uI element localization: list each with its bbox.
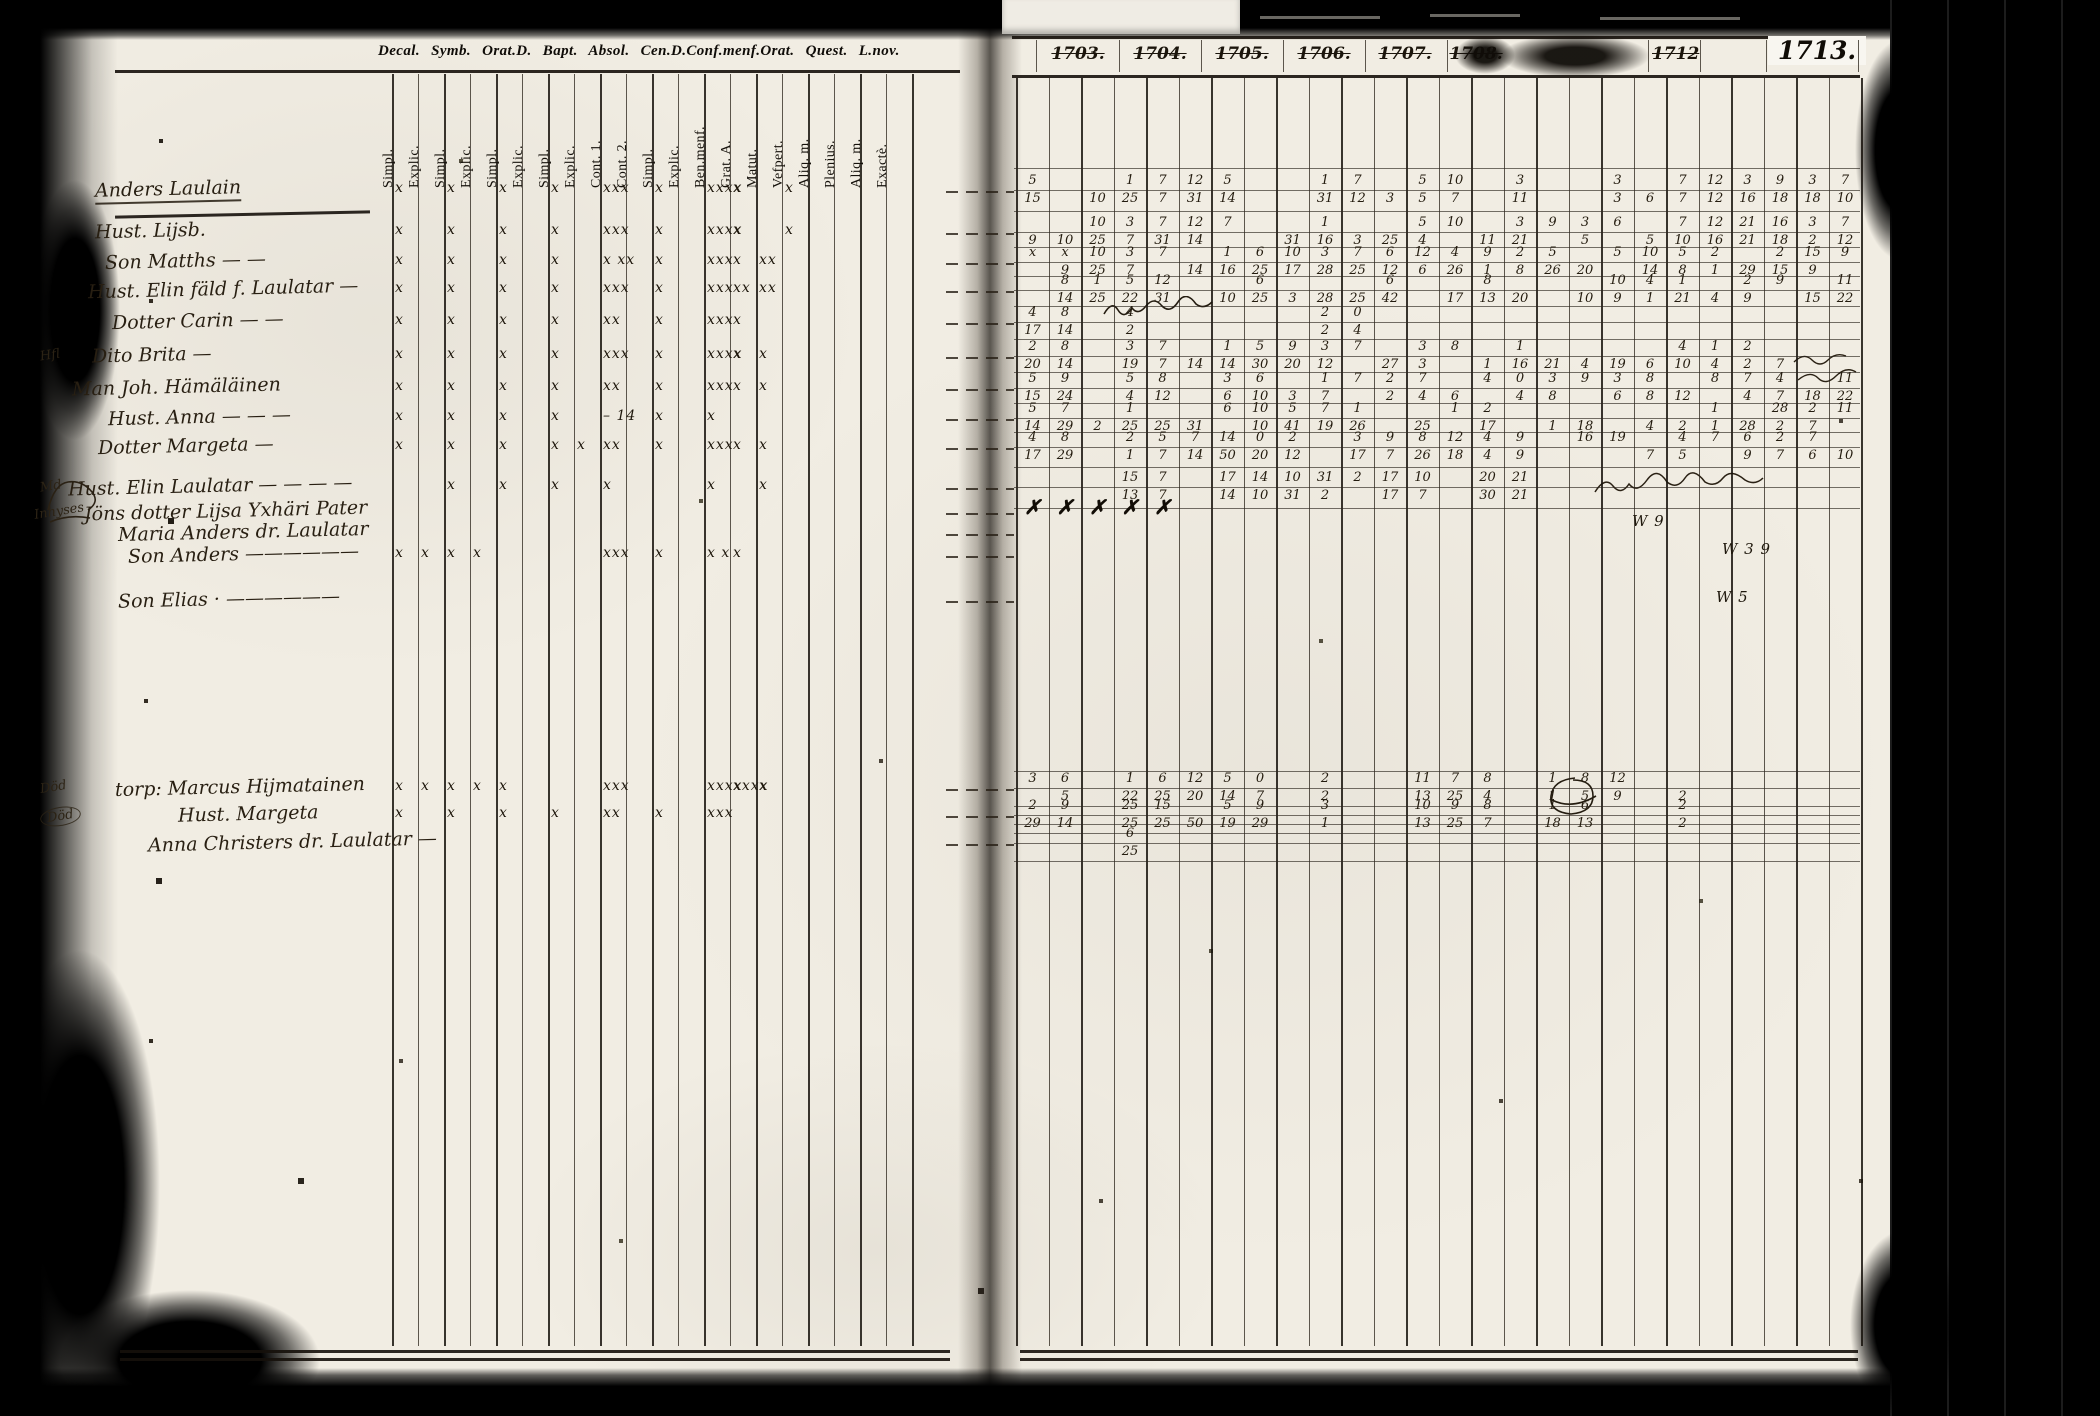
margin-annotation: W 5	[1716, 588, 1749, 606]
attendance-mark: x	[447, 180, 456, 196]
entry-number: 14	[1179, 263, 1212, 278]
row-leader	[946, 357, 1014, 359]
entry-number: 3	[1276, 291, 1309, 306]
attendance-mark: x	[395, 312, 404, 328]
name-entry: Anders Laulain	[95, 176, 242, 205]
entry-number: 20	[1179, 789, 1212, 804]
entry-number: 12	[1439, 430, 1472, 445]
entry-number: 8	[1406, 430, 1439, 445]
entry-number: 9	[1601, 789, 1634, 804]
entry-number: 25	[1244, 291, 1277, 306]
entry-number: 2	[1016, 798, 1049, 813]
entry-number: 2	[1731, 357, 1764, 372]
entry-number: 12	[1601, 771, 1634, 786]
attendance-mark: x x	[707, 545, 730, 561]
entry-number: ✗	[1016, 495, 1049, 519]
entry-number: 9	[1244, 798, 1277, 813]
attendance-mark: x	[759, 437, 768, 453]
row-leader	[946, 191, 1014, 193]
ink-smudge	[1455, 36, 1515, 74]
entry-number: 9	[1471, 245, 1504, 260]
entry-number: 1	[1211, 245, 1244, 260]
entry-number: 50	[1211, 448, 1244, 463]
attendance-mark: x	[655, 180, 664, 196]
entry-number: 50	[1179, 816, 1212, 831]
entry-number: 7	[1764, 357, 1797, 372]
entry-number: 8	[1439, 339, 1472, 354]
entry-number: 28	[1309, 291, 1342, 306]
entry-number: 25	[1114, 191, 1147, 206]
attendance-mark: x	[655, 346, 664, 362]
entry-number: 9	[1536, 215, 1569, 230]
entry-number: 7	[1731, 371, 1764, 386]
entry-number: 25	[1146, 816, 1179, 831]
entry-number: 10	[1081, 245, 1114, 260]
year-label: 1713.	[1768, 36, 1866, 65]
entry-number: 3	[1536, 371, 1569, 386]
entry-number: 9	[1731, 448, 1764, 463]
attendance-mark: x	[447, 252, 456, 268]
entry-number: 9	[1504, 448, 1537, 463]
entry-number: 31	[1309, 191, 1342, 206]
attendance-mark: x	[395, 778, 404, 794]
attendance-mark: x	[499, 346, 508, 362]
entry-number: 1	[1504, 339, 1537, 354]
entry-number: 31	[1146, 291, 1179, 306]
attendance-mark: x	[447, 222, 456, 238]
column-rule	[444, 74, 446, 1346]
entry-number: 6	[1796, 448, 1829, 463]
entry-number: 12	[1146, 273, 1179, 288]
row-leader	[946, 816, 1014, 818]
name-entry: Hust. Lijsb.	[95, 219, 206, 244]
row-rule	[1014, 467, 1860, 468]
entry-number: 5	[1146, 430, 1179, 445]
entry-number: 12	[1699, 215, 1732, 230]
entry-number: 25	[1114, 798, 1147, 813]
entry-number: 1	[1536, 771, 1569, 786]
entry-number: 18	[1536, 816, 1569, 831]
entry-number: 1	[1634, 291, 1667, 306]
entry-number: 1	[1211, 339, 1244, 354]
entry-number: 3	[1309, 339, 1342, 354]
attendance-mark: x	[473, 545, 482, 561]
entry-number: 18	[1439, 448, 1472, 463]
entry-number: 2	[1374, 371, 1407, 386]
entry-number: 17	[1211, 470, 1244, 485]
entry-number: ✗	[1081, 495, 1114, 519]
attendance-mark: x	[551, 378, 560, 394]
entry-number: 5	[1016, 371, 1049, 386]
entry-number: 6	[1601, 389, 1634, 404]
ink-blot	[1855, 40, 1945, 260]
entry-number: 3	[1309, 798, 1342, 813]
row-rule	[1014, 861, 1860, 862]
attendance-mark: x	[551, 408, 560, 424]
entry-number: 2	[1504, 245, 1537, 260]
entry-number: 10	[1244, 401, 1277, 416]
entry-number: 2	[1731, 339, 1764, 354]
entry-number: 3	[1406, 357, 1439, 372]
entry-number: 5	[1601, 245, 1634, 260]
attendance-mark: xxx	[603, 280, 630, 296]
entry-number: 12	[1179, 215, 1212, 230]
entry-number: 1	[1114, 448, 1147, 463]
entry-number: 31	[1276, 488, 1309, 503]
entry-number: 1	[1699, 263, 1732, 278]
entry-number: 3	[1211, 371, 1244, 386]
entry-number: 10	[1406, 470, 1439, 485]
entry-number: 6	[1634, 357, 1667, 372]
entry-number: 4	[1471, 430, 1504, 445]
entry-number: 14	[1179, 448, 1212, 463]
column-rule	[912, 74, 914, 1346]
entry-number: 15	[1796, 245, 1829, 260]
bottom-rule	[120, 1358, 950, 1361]
entry-number: 10	[1829, 448, 1862, 463]
entry-number: 5	[1276, 401, 1309, 416]
row-leader	[946, 291, 1014, 293]
entry-number: 9	[1504, 430, 1537, 445]
paper-slip	[1002, 0, 1240, 34]
entry-number: 9	[1439, 798, 1472, 813]
column-label: Explic.	[511, 145, 527, 188]
entry-number: 11	[1829, 401, 1862, 416]
entry-number: 2	[1731, 273, 1764, 288]
column-rule	[522, 74, 523, 1346]
year-separator	[1766, 40, 1767, 72]
row-leader	[946, 389, 1014, 391]
entry-number: 9	[1049, 798, 1082, 813]
attendance-mark: x	[447, 545, 456, 561]
attendance-mark: xxx	[707, 312, 734, 328]
attendance-mark: x	[447, 312, 456, 328]
entry-number: 26	[1439, 263, 1472, 278]
attendance-mark: x	[551, 437, 560, 453]
entry-number: 4	[1016, 305, 1049, 320]
column-label: Explic.	[407, 145, 423, 188]
row-leader	[946, 513, 1014, 515]
year-label: 1704.	[1124, 44, 1196, 64]
entry-number: 6	[1244, 371, 1277, 386]
entry-number: 8	[1146, 371, 1179, 386]
entry-number: 9	[1569, 371, 1602, 386]
row-leader	[946, 263, 1014, 265]
entry-number: 27	[1374, 357, 1407, 372]
entry-number: 30	[1244, 357, 1277, 372]
attendance-mark: xxx	[707, 378, 734, 394]
entry-number: 7	[1471, 816, 1504, 831]
entry-number: 6	[1244, 245, 1277, 260]
year-label: 1712	[1652, 44, 1694, 64]
year-separator	[1119, 40, 1120, 72]
entry-number: 4	[1699, 357, 1732, 372]
entry-number: 26	[1406, 448, 1439, 463]
entry-number: 8	[1471, 798, 1504, 813]
entry-number: x	[1049, 245, 1082, 260]
margin-annotation: W 3 9	[1722, 540, 1771, 558]
year-band-rule	[1012, 36, 1860, 39]
entry-number: 11	[1406, 771, 1439, 786]
entry-number: 3	[1601, 173, 1634, 188]
attendance-mark: x	[785, 222, 794, 238]
attendance-mark: xx	[603, 378, 621, 394]
ink-blot	[1850, 1230, 1960, 1416]
scan-noise	[0, 0, 2, 2]
attendance-mark: x	[707, 477, 716, 493]
row-leader	[946, 601, 1014, 603]
entry-number: 17	[1439, 291, 1472, 306]
entry-number: 8	[1049, 339, 1082, 354]
entry-number: 3	[1016, 771, 1049, 786]
entry-number: 1	[1699, 339, 1732, 354]
entry-number: 1	[1309, 816, 1342, 831]
attendance-mark: x	[759, 778, 768, 794]
margin-note: Hfl	[39, 347, 61, 365]
row-leader	[946, 556, 1014, 558]
entry-number: 3	[1114, 339, 1147, 354]
entry-number: 2	[1309, 771, 1342, 786]
entry-number: 3	[1309, 245, 1342, 260]
attendance-mark: x	[733, 346, 742, 362]
entry-number: 5	[1666, 448, 1699, 463]
entry-number: 29	[1016, 816, 1049, 831]
entry-number: 12	[1179, 173, 1212, 188]
attendance-mark: x	[759, 378, 768, 394]
attendance-mark: x	[395, 408, 404, 424]
entry-number: 20	[1016, 357, 1049, 372]
row-rule	[1014, 168, 1860, 169]
entry-number: 12	[1276, 448, 1309, 463]
entry-number: 16	[1764, 215, 1797, 230]
attendance-mark: x	[551, 252, 560, 268]
bottom-rule	[120, 1350, 950, 1353]
entry-number: 12	[1341, 191, 1374, 206]
entry-number: 19	[1211, 816, 1244, 831]
entry-number: 7	[1666, 215, 1699, 230]
attendance-mark: x	[395, 252, 404, 268]
row-leader	[946, 534, 1014, 536]
entry-number: 2	[1699, 245, 1732, 260]
entry-number: 6	[1569, 798, 1602, 813]
column-rule	[392, 74, 394, 1346]
attendance-mark: xxx	[603, 346, 630, 362]
entry-number: 4	[1634, 273, 1667, 288]
entry-number: 5	[1569, 233, 1602, 248]
column-rule	[704, 74, 706, 1346]
column-rule	[678, 74, 679, 1346]
entry-number: 5	[1406, 173, 1439, 188]
entry-number: 25	[1341, 291, 1374, 306]
column-label: Explic.	[563, 145, 579, 188]
entry-number: 26	[1536, 263, 1569, 278]
ink-blot	[60, 1290, 320, 1416]
entry-number: 21	[1536, 357, 1569, 372]
entry-number: 7	[1439, 771, 1472, 786]
entry-number: 7	[1829, 173, 1862, 188]
entry-number: 10	[1634, 245, 1667, 260]
row-leader	[946, 448, 1014, 450]
year-label: 1703.	[1042, 44, 1114, 64]
attendance-mark: x	[577, 437, 586, 453]
entry-number: 7	[1439, 191, 1472, 206]
entry-number: 10	[1439, 215, 1472, 230]
grid-rule	[1861, 78, 1863, 1346]
entry-number: 19	[1601, 357, 1634, 372]
entry-number: 2	[1016, 339, 1049, 354]
entry-number: 4	[1764, 371, 1797, 386]
attendance-mark: xx	[603, 312, 621, 328]
bottom-rule	[1020, 1350, 1858, 1353]
entry-number: 1	[1081, 273, 1114, 288]
ghost-mark	[1430, 14, 1520, 17]
entry-number: 1	[1536, 419, 1569, 434]
entry-number: 7	[1146, 173, 1179, 188]
grid-rule	[1016, 78, 1018, 1346]
entry-number: 16	[1211, 263, 1244, 278]
entry-number: 4	[1341, 323, 1374, 338]
column-rule	[834, 74, 835, 1346]
year-separator	[1283, 40, 1284, 72]
entry-number: 7	[1796, 430, 1829, 445]
entry-number: 4	[1471, 448, 1504, 463]
entry-number: 9	[1796, 263, 1829, 278]
entry-number: 3	[1569, 215, 1602, 230]
attendance-mark: x	[395, 346, 404, 362]
attendance-mark: xxx	[603, 180, 630, 196]
entry-number: 3	[1731, 173, 1764, 188]
entry-number: 6	[1244, 273, 1277, 288]
entry-number: 20	[1504, 291, 1537, 306]
entry-number: 8	[1634, 371, 1667, 386]
entry-number: 8	[1504, 263, 1537, 278]
entry-number: 20	[1569, 263, 1602, 278]
entry-number: 20	[1276, 357, 1309, 372]
attendance-mark: x	[499, 312, 508, 328]
attendance-mark: x	[655, 378, 664, 394]
entry-number: 14	[1049, 357, 1082, 372]
attendance-mark: x	[499, 778, 508, 794]
attendance-mark: xxx	[707, 437, 734, 453]
entry-number: 28	[1764, 401, 1797, 416]
entry-number: 7	[1341, 339, 1374, 354]
column-label: Aliq. m.	[797, 139, 813, 188]
entry-number: 1	[1309, 173, 1342, 188]
entry-number: 7	[1146, 245, 1179, 260]
entry-number: 7	[1146, 357, 1179, 372]
entry-number: 14	[1049, 816, 1082, 831]
attendance-mark: x	[655, 408, 664, 424]
column-label: Explic.	[667, 145, 683, 188]
attendance-mark: x	[655, 545, 664, 561]
attendance-mark: x xx	[603, 252, 635, 268]
entry-number: 7	[1146, 339, 1179, 354]
attendance-mark: x	[447, 280, 456, 296]
entry-number: 17	[1374, 470, 1407, 485]
entry-number: 3	[1406, 339, 1439, 354]
entry-number: 5	[1114, 371, 1147, 386]
column-rule	[808, 74, 810, 1346]
column-rule	[600, 74, 602, 1346]
entry-number: 1	[1536, 798, 1569, 813]
attendance-mark: x	[395, 545, 404, 561]
entry-number: 5	[1114, 273, 1147, 288]
column-rule	[496, 74, 498, 1346]
attendance-mark: xx	[759, 252, 777, 268]
attendance-mark: x	[499, 180, 508, 196]
entry-number: 0	[1244, 771, 1277, 786]
entry-number: 5	[1244, 339, 1277, 354]
entry-number: 4	[1114, 305, 1147, 320]
entry-number: 8	[1471, 771, 1504, 786]
entry-number: 2	[1341, 470, 1374, 485]
attendance-mark: – 14	[603, 408, 636, 424]
entry-number: 12	[1699, 173, 1732, 188]
attendance-mark: x	[655, 280, 664, 296]
entry-number: 22	[1829, 291, 1862, 306]
entry-number: 25	[1081, 291, 1114, 306]
entry-number: 8	[1569, 771, 1602, 786]
entry-number: 3	[1504, 215, 1537, 230]
ink-blot	[30, 180, 120, 440]
attendance-mark: x	[733, 252, 742, 268]
entry-number: 18	[1796, 191, 1829, 206]
entry-number: 13	[1406, 816, 1439, 831]
entry-number: 3	[1341, 430, 1374, 445]
entry-number: 14	[1049, 291, 1082, 306]
entry-number: 16	[1731, 191, 1764, 206]
attendance-mark: x	[447, 437, 456, 453]
column-label: Matut.	[745, 149, 761, 188]
entry-number: 9	[1764, 173, 1797, 188]
book-spine	[958, 20, 1022, 1386]
year-label: 1705.	[1206, 44, 1278, 64]
entry-number: 7	[1666, 173, 1699, 188]
entry-number: 7	[1309, 401, 1342, 416]
entry-number: 14	[1211, 191, 1244, 206]
column-rule	[886, 74, 887, 1346]
entry-number: 7	[1146, 470, 1179, 485]
entry-number: 2	[1764, 245, 1797, 260]
column-label: Explic.	[459, 145, 475, 188]
year-separator	[1201, 40, 1202, 72]
entry-number: 15	[1146, 798, 1179, 813]
entry-number: 3	[1796, 215, 1829, 230]
entry-number: 7	[1211, 215, 1244, 230]
bottom-rule	[1020, 1358, 1858, 1361]
entry-number: 7	[1341, 245, 1374, 260]
entry-number: 11	[1829, 273, 1862, 288]
entry-number: 12	[1406, 245, 1439, 260]
scanned-register-page: Decal. Symb. Orat.D. Bapt. Absol. Cen.D.…	[0, 0, 2100, 1416]
entry-number: 7	[1666, 191, 1699, 206]
row-leader	[946, 419, 1014, 421]
entry-number: 16	[1504, 357, 1537, 372]
entry-number: 4	[1666, 339, 1699, 354]
column-rule	[652, 74, 654, 1346]
attendance-mark: x	[447, 378, 456, 394]
row-leader	[946, 323, 1014, 325]
attendance-mark: xxx	[603, 222, 630, 238]
entry-number: 7	[1341, 371, 1374, 386]
entry-number: 12	[1309, 357, 1342, 372]
entry-number: 15	[1016, 191, 1049, 206]
entry-number: 15	[1796, 291, 1829, 306]
attendance-mark: xx	[603, 437, 621, 453]
entry-number: 3	[1601, 371, 1634, 386]
attendance-mark: x	[733, 378, 742, 394]
entry-number: 18	[1764, 191, 1797, 206]
